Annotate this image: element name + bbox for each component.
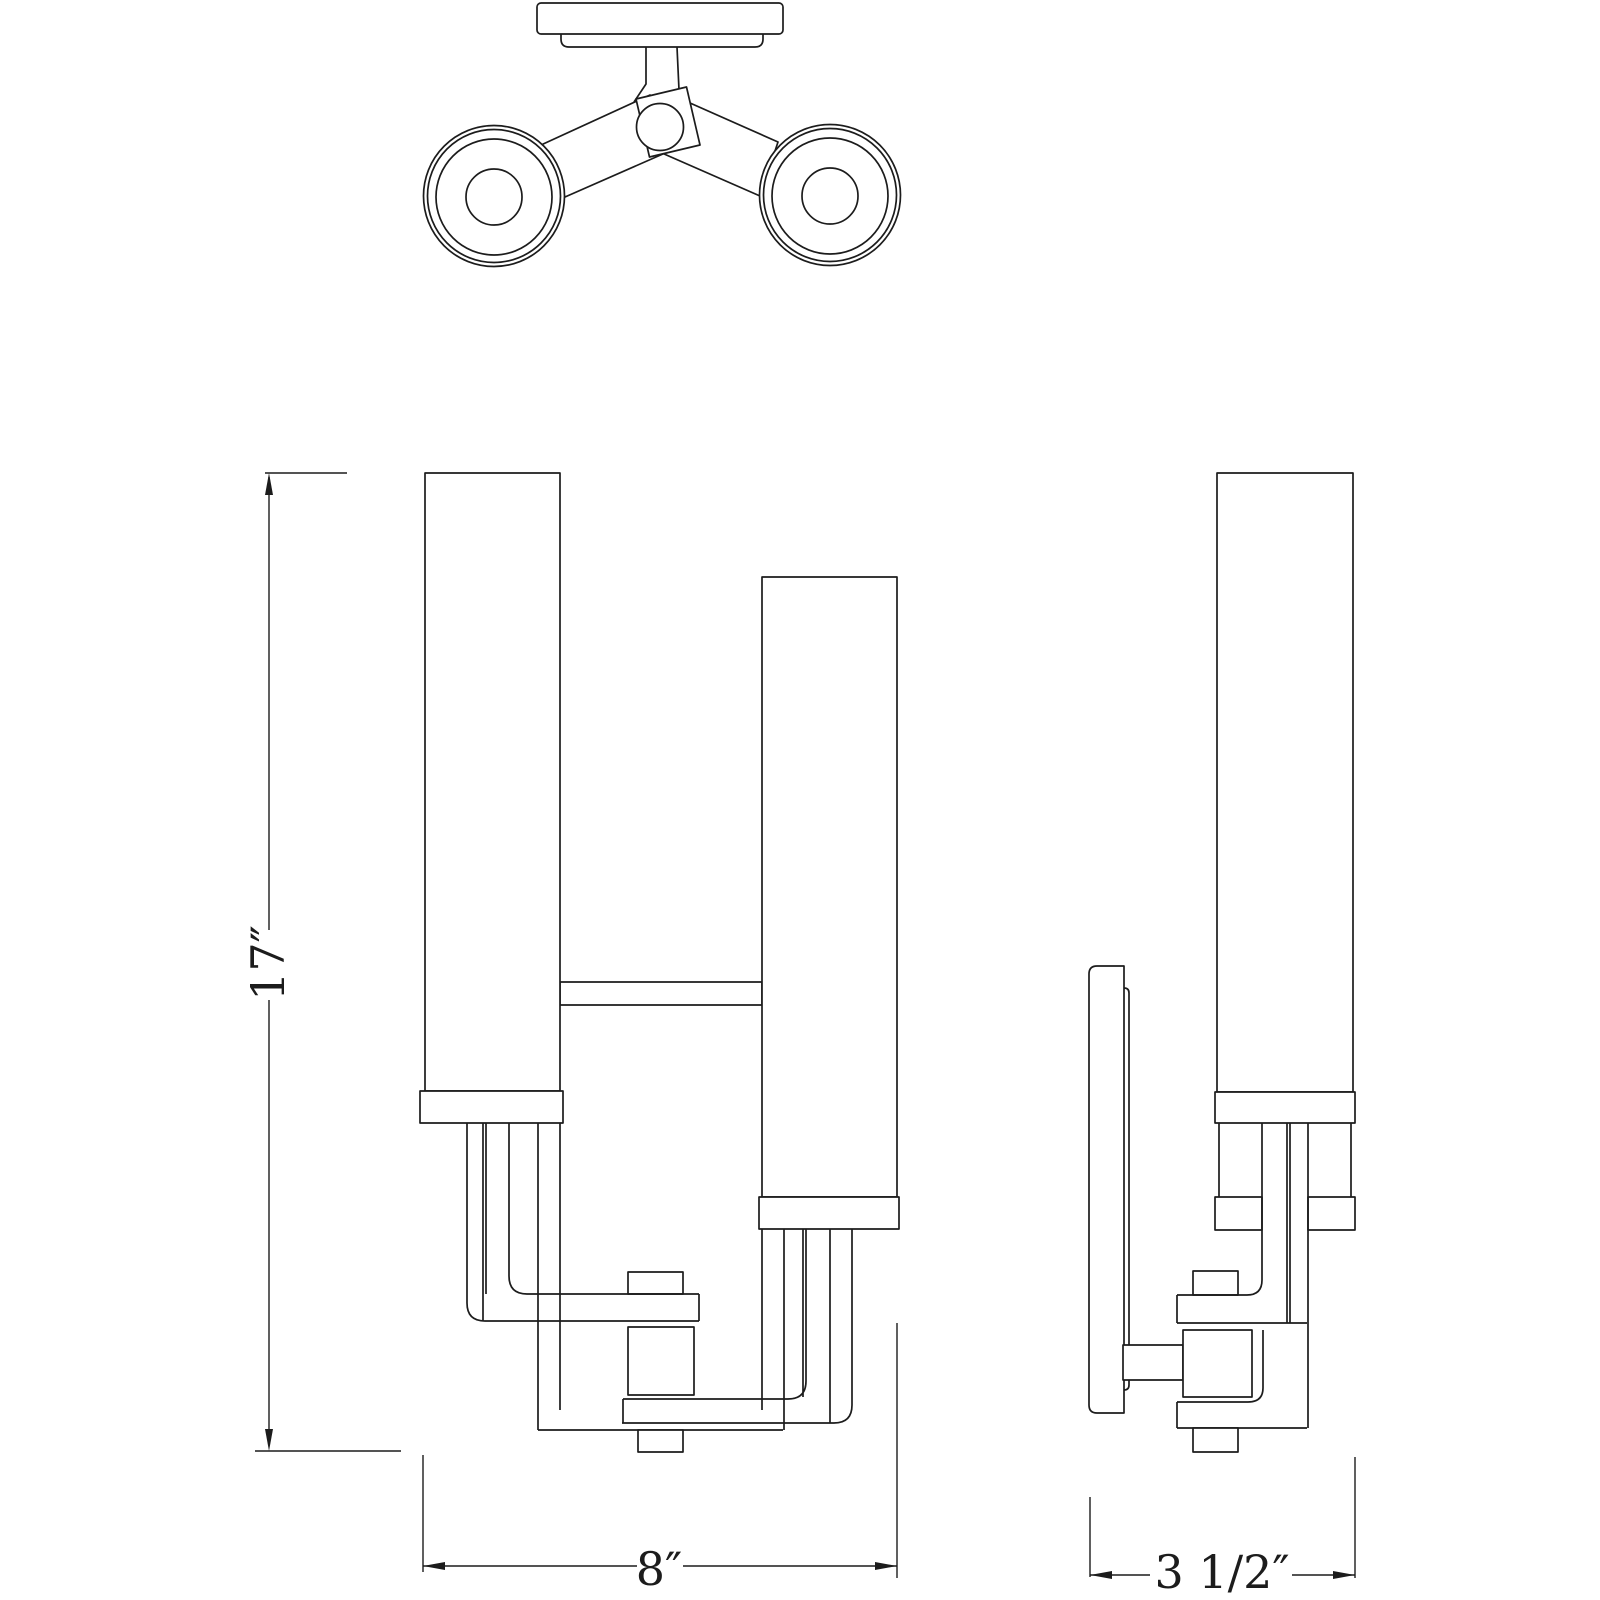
right-arm-rods bbox=[788, 1229, 852, 1423]
depth-dimension: 3 1/2″ bbox=[1090, 1457, 1355, 1599]
finial-front bbox=[638, 1430, 683, 1452]
finial-side bbox=[1193, 1428, 1238, 1452]
left-arm-rods bbox=[467, 1123, 527, 1321]
height-arrow-down bbox=[265, 1429, 273, 1451]
crossbar-front bbox=[560, 982, 762, 1005]
depth-arrow-left bbox=[1090, 1571, 1112, 1579]
right-shade-top bbox=[760, 125, 901, 266]
width-arrow-left bbox=[423, 1562, 445, 1570]
socket-box-side bbox=[1183, 1330, 1252, 1397]
wall-plate-side bbox=[1089, 966, 1124, 1413]
right-cylinder-front bbox=[762, 577, 897, 1197]
rear-cap-left-block-side bbox=[1215, 1197, 1262, 1230]
lower-bar-side bbox=[1177, 1402, 1307, 1428]
connector-side bbox=[1123, 1345, 1183, 1380]
sconce-dimension-drawing: 17″ 8″ 3 1/2″ bbox=[0, 0, 1600, 1600]
canopy-plate-top bbox=[537, 3, 783, 34]
left-arm-box bbox=[628, 1272, 683, 1294]
height-dimension: 17″ bbox=[241, 473, 401, 1451]
height-arrow-up bbox=[265, 473, 273, 495]
left-arm-front bbox=[467, 1123, 699, 1321]
left-arm-bar bbox=[485, 1294, 699, 1321]
cap-side bbox=[1215, 1092, 1355, 1123]
front-view bbox=[420, 473, 899, 1452]
left-cap-front bbox=[420, 1091, 563, 1123]
cylinder-side bbox=[1217, 473, 1353, 1092]
socket-box-front bbox=[628, 1327, 694, 1395]
rear-cap-right-block-side bbox=[1308, 1197, 1355, 1230]
right-arm-bar bbox=[622, 1399, 834, 1423]
top-view bbox=[424, 3, 901, 267]
left-shade-top bbox=[424, 126, 565, 267]
left-cylinder-front bbox=[425, 473, 560, 1091]
width-dimension-label: 8″ bbox=[636, 1542, 682, 1596]
left-shade-socket bbox=[466, 169, 522, 225]
rods-side bbox=[1247, 1123, 1308, 1428]
height-dimension-label: 17″ bbox=[241, 925, 295, 1001]
arm-box-side bbox=[1193, 1271, 1238, 1295]
right-cap-front bbox=[759, 1197, 899, 1229]
depth-dimension-label: 3 1/2″ bbox=[1154, 1545, 1289, 1599]
drawing-canvas: 17″ 8″ 3 1/2″ bbox=[0, 0, 1600, 1600]
rear-cylinder-edges-side bbox=[1219, 1123, 1351, 1197]
side-view bbox=[1089, 473, 1355, 1452]
right-shade-socket bbox=[802, 168, 858, 224]
depth-arrow-right bbox=[1333, 1571, 1355, 1579]
width-arrow-right bbox=[875, 1562, 897, 1570]
hub-circle-top bbox=[637, 104, 684, 151]
canopy-backplate-top bbox=[561, 34, 763, 47]
